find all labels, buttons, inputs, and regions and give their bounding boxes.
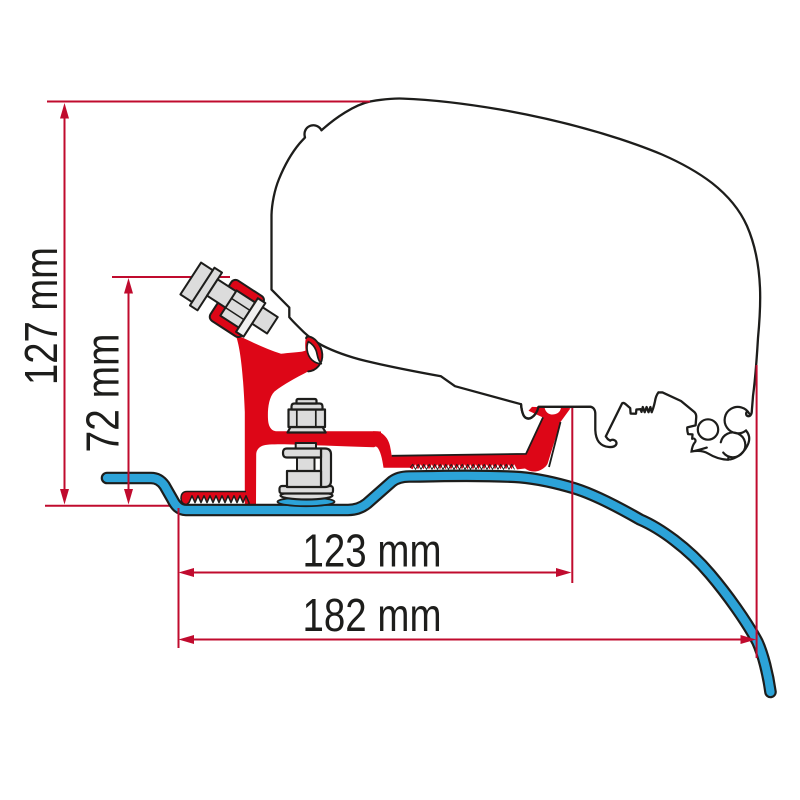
svg-text:72 mm: 72 mm [77, 334, 129, 453]
svg-text:182 mm: 182 mm [303, 589, 442, 641]
svg-text:123 mm: 123 mm [303, 525, 442, 577]
svg-text:127 mm: 127 mm [15, 247, 67, 385]
